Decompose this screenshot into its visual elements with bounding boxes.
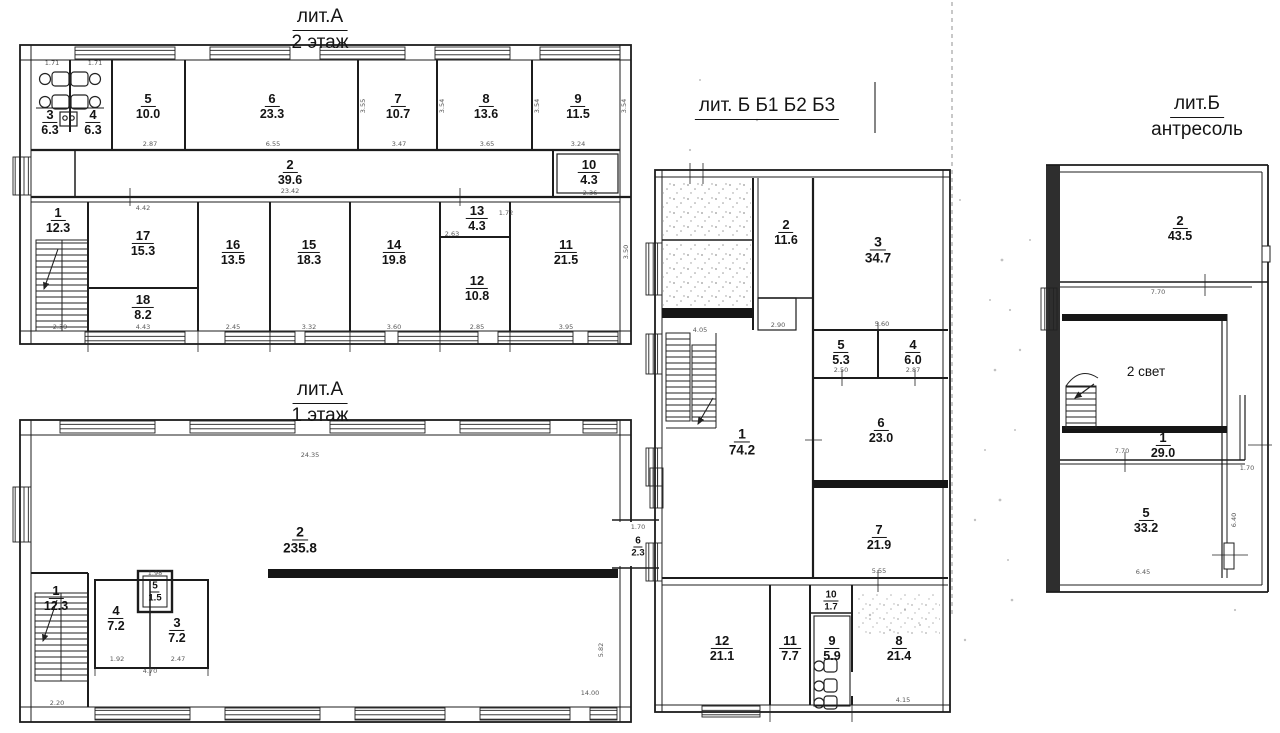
floor-plan-drawing [0, 0, 1280, 733]
floor-plan-page: лит.А 2 этаж лит.А 1 этаж лит. Б Б1 Б2 Б… [0, 0, 1280, 733]
